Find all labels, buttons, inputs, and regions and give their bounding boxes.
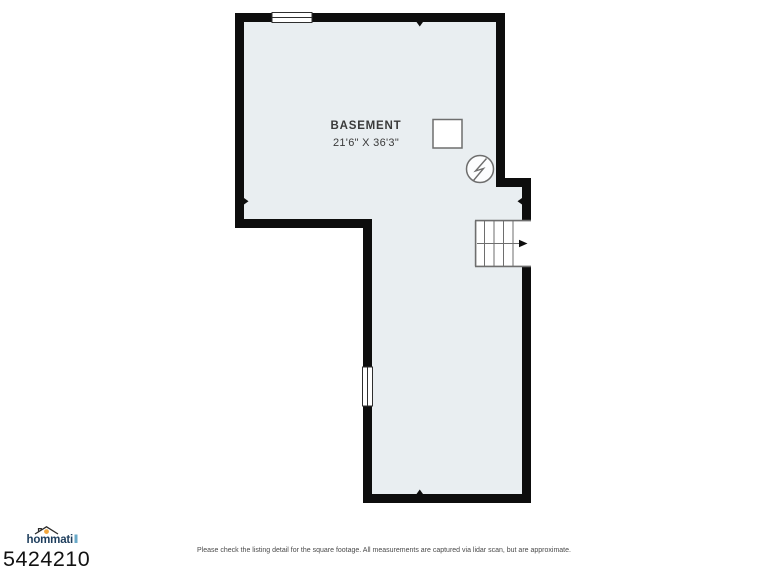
room-label: BASEMENT — [266, 120, 466, 132]
electrical-panel-icon — [467, 156, 494, 183]
logo-wordmark: hommati — [27, 534, 74, 546]
hommati-logo-graphic: hommati — [26, 524, 84, 548]
room-dimensions: 21'6" X 36'3" — [266, 137, 466, 149]
floorplan-drawing — [0, 0, 768, 576]
stairs-icon — [475, 220, 531, 267]
hommati-logo: hommati — [26, 524, 84, 548]
floorplan-page: BASEMENT 21'6" X 36'3" hommati 5424210 P… — [0, 0, 768, 576]
disclaimer-text: Please check the listing detail for the … — [0, 547, 768, 554]
window-top-icon — [272, 13, 312, 23]
logo-accent-bar — [75, 535, 78, 544]
window-left-icon — [363, 367, 373, 406]
